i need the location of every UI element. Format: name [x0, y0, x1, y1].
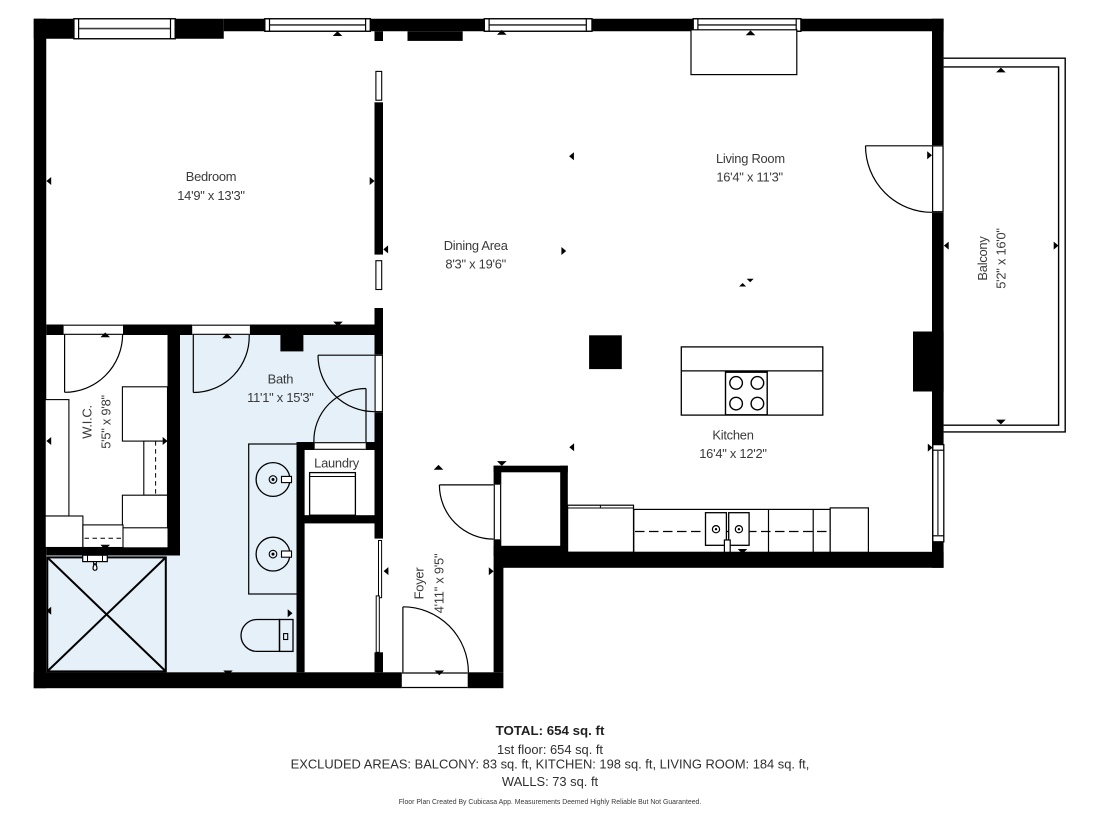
svg-text:W.I.C.: W.I.C. [80, 405, 95, 439]
svg-text:Floor Plan Created By Cubicasa: Floor Plan Created By Cubicasa App. Meas… [399, 799, 702, 806]
svg-text:Balcony: Balcony [975, 236, 990, 281]
svg-text:Kitchen: Kitchen [712, 428, 753, 443]
svg-text:16'4" x 11'3": 16'4" x 11'3" [716, 169, 783, 184]
svg-text:11'1" x 15'3": 11'1" x 15'3" [247, 390, 314, 405]
svg-text:5'2" x 16'0": 5'2" x 16'0" [994, 228, 1009, 289]
svg-text:TOTAL: 654 sq. ft: TOTAL: 654 sq. ft [496, 723, 605, 738]
svg-text:8'3" x 19'6": 8'3" x 19'6" [445, 256, 506, 271]
svg-text:Living Room: Living Room [716, 151, 785, 166]
svg-text:14'9" x 13'3": 14'9" x 13'3" [177, 188, 245, 203]
svg-text:Laundry: Laundry [314, 456, 360, 471]
svg-text:1st floor: 654 sq. ft: 1st floor: 654 sq. ft [497, 742, 603, 757]
svg-text:Bedroom: Bedroom [186, 169, 237, 184]
svg-text:EXCLUDED AREAS: BALCONY: 83 sq: EXCLUDED AREAS: BALCONY: 83 sq. ft, KITC… [291, 757, 810, 772]
svg-text:5'5" x 9'8": 5'5" x 9'8" [98, 395, 113, 449]
svg-text:4'11" x 9'5": 4'11" x 9'5" [432, 553, 447, 613]
svg-text:Foyer: Foyer [412, 567, 427, 600]
svg-text:Dining Area: Dining Area [444, 238, 509, 253]
svg-text:Bath: Bath [268, 372, 294, 387]
svg-text:16'4" x 12'2": 16'4" x 12'2" [699, 446, 767, 461]
svg-text:WALLS: 73 sq. ft: WALLS: 73 sq. ft [502, 774, 599, 789]
